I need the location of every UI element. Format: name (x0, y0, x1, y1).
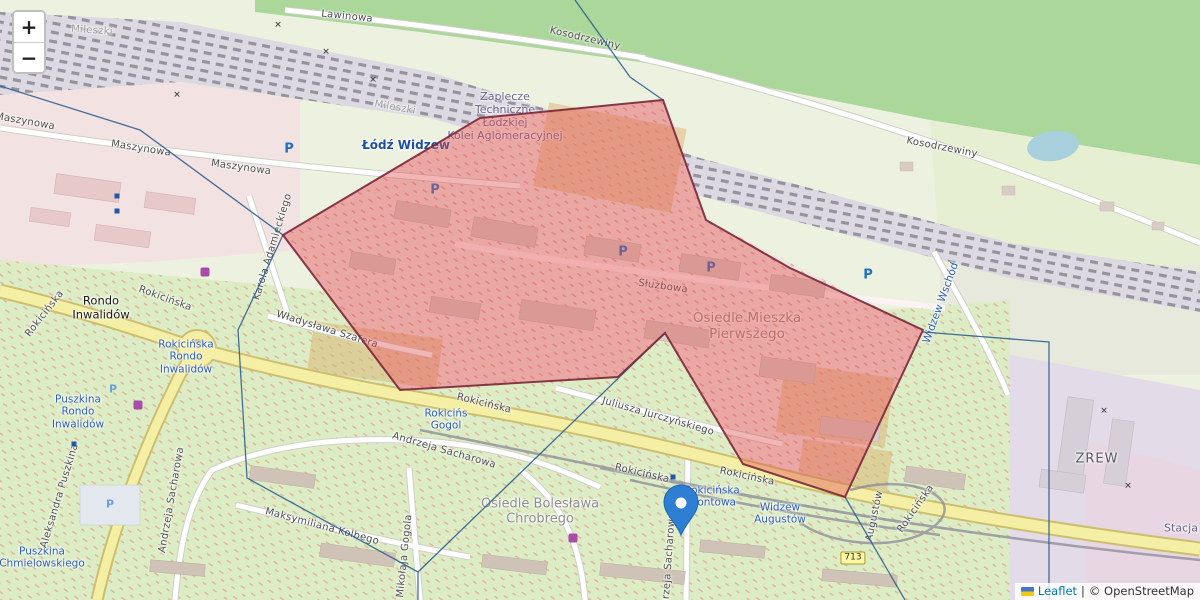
zoom-out-button[interactable]: − (14, 42, 44, 72)
osm-credit: © OpenStreetMap (1089, 584, 1194, 598)
ukraine-flag-icon (1021, 587, 1034, 596)
leaflet-link[interactable]: Leaflet (1038, 584, 1077, 598)
map-canvas[interactable]: Lawinowa Kosodrzewiny Kosodrzewiny Miles… (0, 0, 1200, 600)
attribution-bar: Leaflet | © OpenStreetMap (1015, 583, 1200, 600)
zoom-control: + − (12, 10, 46, 74)
attribution-separator: | (1081, 584, 1085, 598)
zoom-in-button[interactable]: + (14, 12, 44, 42)
overlay-layer (0, 0, 1200, 600)
location-marker[interactable] (664, 485, 698, 535)
highlight-polygon[interactable] (283, 100, 923, 497)
